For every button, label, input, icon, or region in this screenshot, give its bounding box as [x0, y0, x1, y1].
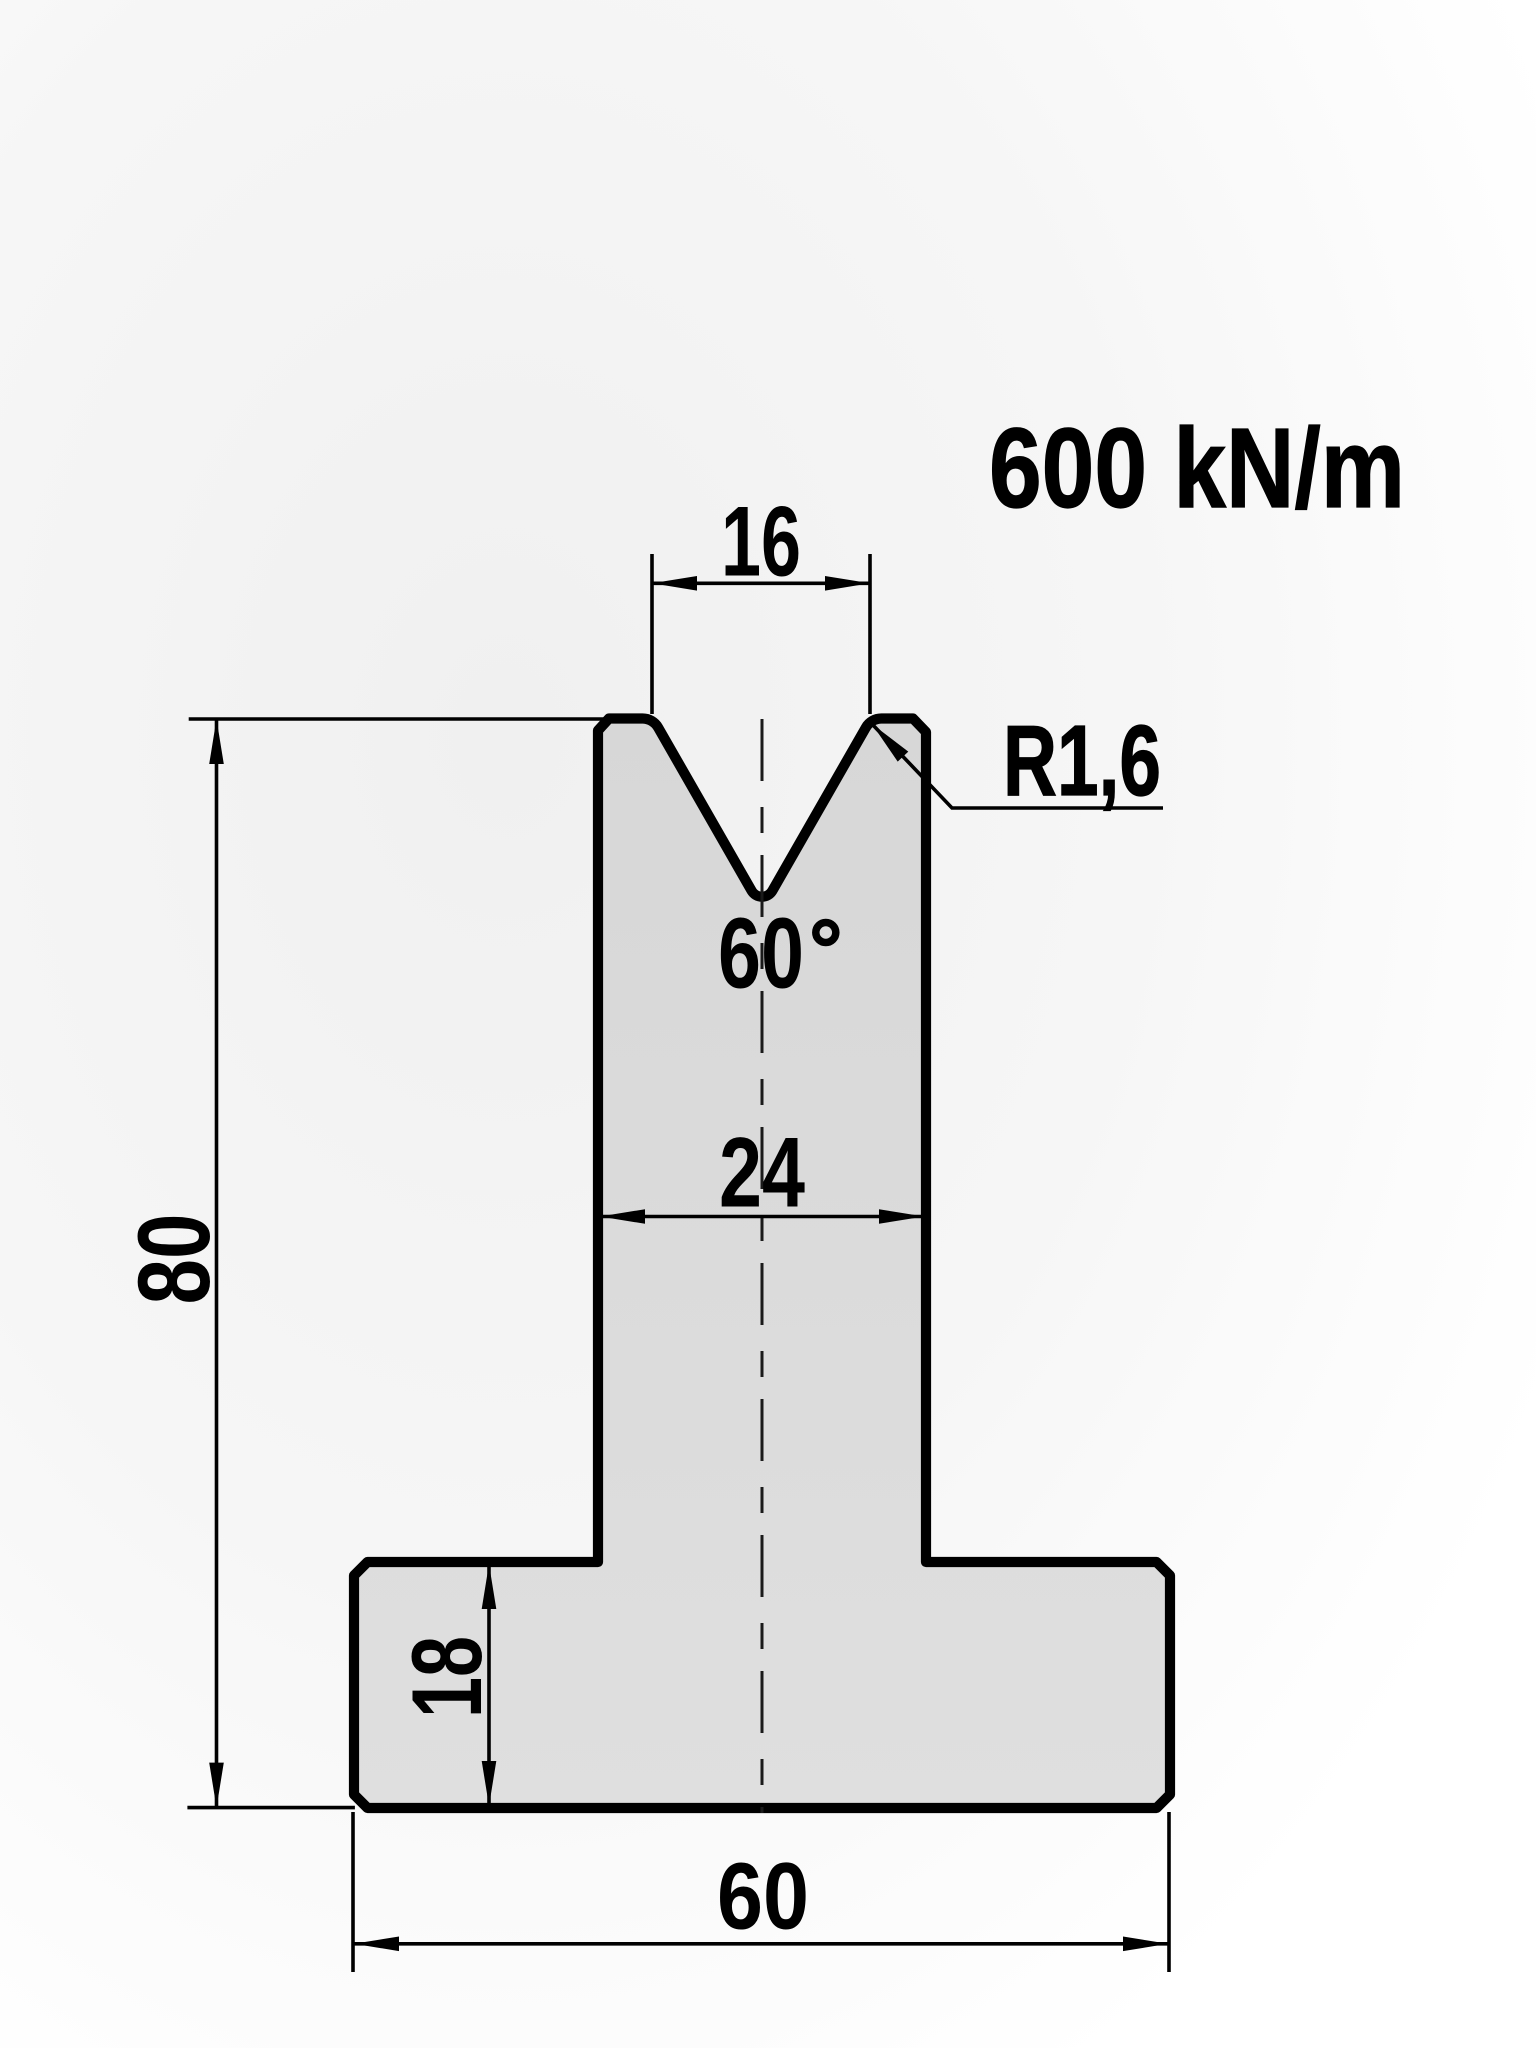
- svg-text:16: 16: [721, 485, 801, 596]
- svg-text:60: 60: [717, 1843, 809, 1949]
- svg-text:18: 18: [391, 1636, 502, 1718]
- svg-text:24: 24: [719, 1117, 805, 1228]
- svg-text:80: 80: [117, 1214, 231, 1305]
- svg-text:R1,6: R1,6: [1003, 705, 1161, 817]
- svg-text:600 kN/m: 600 kN/m: [989, 405, 1405, 531]
- svg-text:60: 60: [718, 897, 804, 1009]
